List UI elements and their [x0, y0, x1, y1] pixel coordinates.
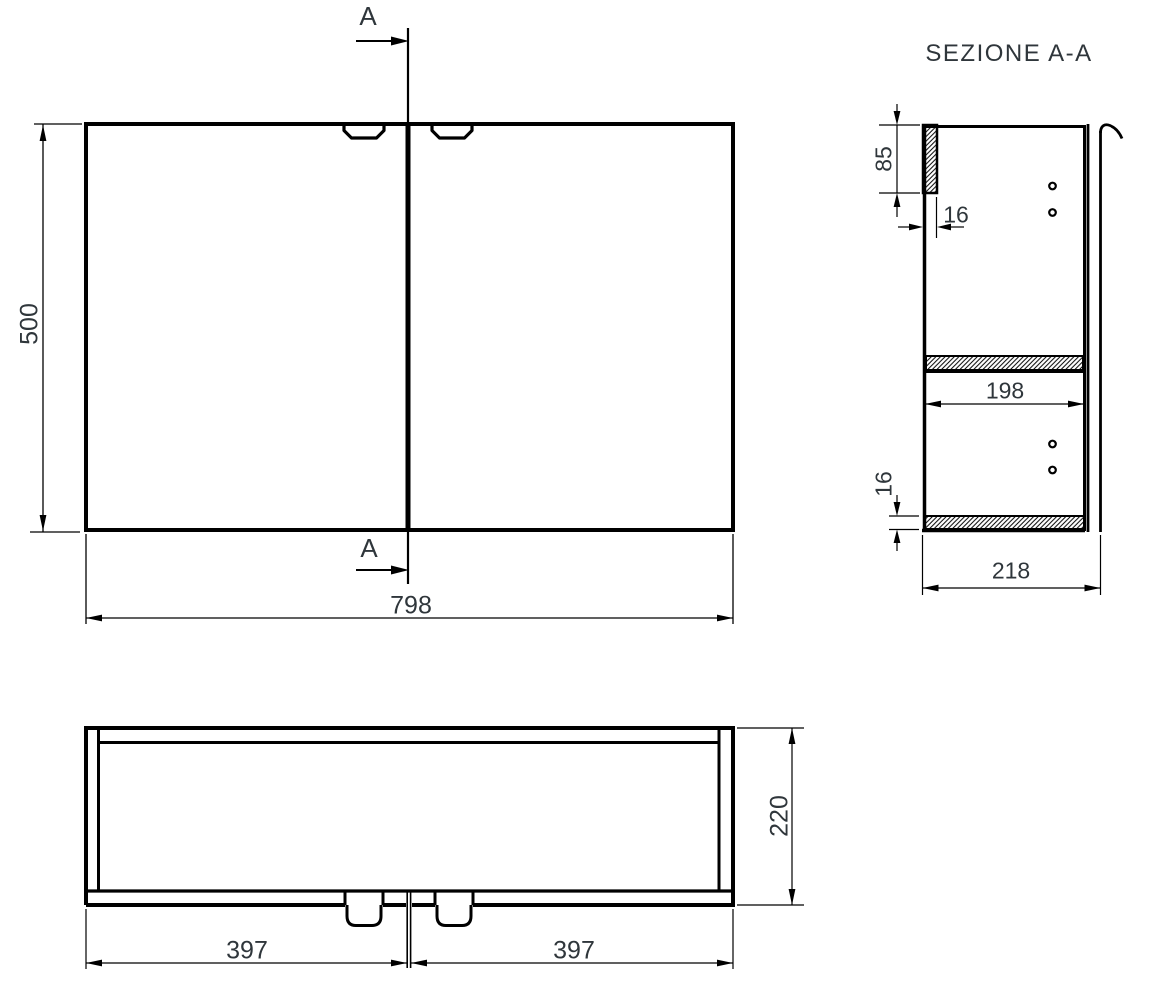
- drawing-linework: [0, 0, 1152, 997]
- dim-front-height: 500: [18, 303, 43, 345]
- cut-arrow-bottom: [391, 566, 409, 575]
- front-view: [30, 28, 733, 624]
- right-handle-tab: [437, 905, 471, 926]
- plan-view: [84, 728, 804, 969]
- dim-door-widths-lines: [86, 909, 733, 969]
- section-cut-line: [356, 28, 409, 584]
- dim-plan-depth: 220: [768, 795, 793, 837]
- dim-right-door-width: 397: [553, 939, 595, 964]
- dim-left-door-width: 397: [226, 939, 268, 964]
- section-handle-curve: [1101, 125, 1123, 139]
- section-shelf-hatched: [926, 356, 1083, 370]
- section-view: [879, 104, 1122, 595]
- dim-front-width: 798: [390, 594, 432, 619]
- section-door-panel: [1088, 124, 1122, 532]
- cut-arrow-top: [391, 37, 409, 46]
- section-title: SEZIONE A-A: [925, 42, 1092, 66]
- dim-bottom-thickness-lines: [889, 495, 919, 551]
- hinge-hole: [1049, 441, 1056, 448]
- dim-top-rail-height: 85: [873, 146, 896, 172]
- technical-drawing-canvas: A A 500 798 SEZIONE A-A 85 16 198 16 218…: [0, 0, 1152, 997]
- dim-total-depth: 218: [992, 560, 1030, 583]
- plan-handle-tabs: [345, 891, 473, 926]
- hinge-holes: [1049, 183, 1056, 474]
- section-bottom-panel-hatched: [924, 516, 1084, 529]
- section-top-rail-hatched: [923, 125, 937, 193]
- cut-line-marker-top: A: [359, 3, 376, 29]
- dim-bottom-thickness: 16: [873, 471, 896, 497]
- hinge-hole: [1049, 467, 1056, 474]
- plan-door-gap-lines: [407, 891, 410, 968]
- dim-inner-depth: 198: [986, 380, 1024, 403]
- dim-top-rail-thickness: 16: [943, 204, 969, 227]
- cut-line-marker-bottom: A: [360, 535, 377, 561]
- left-handle-tab: [347, 905, 381, 926]
- hinge-hole: [1049, 209, 1056, 216]
- left-door-handle-notch: [344, 126, 384, 138]
- hinge-hole: [1049, 183, 1056, 190]
- right-door-handle-notch: [432, 126, 472, 138]
